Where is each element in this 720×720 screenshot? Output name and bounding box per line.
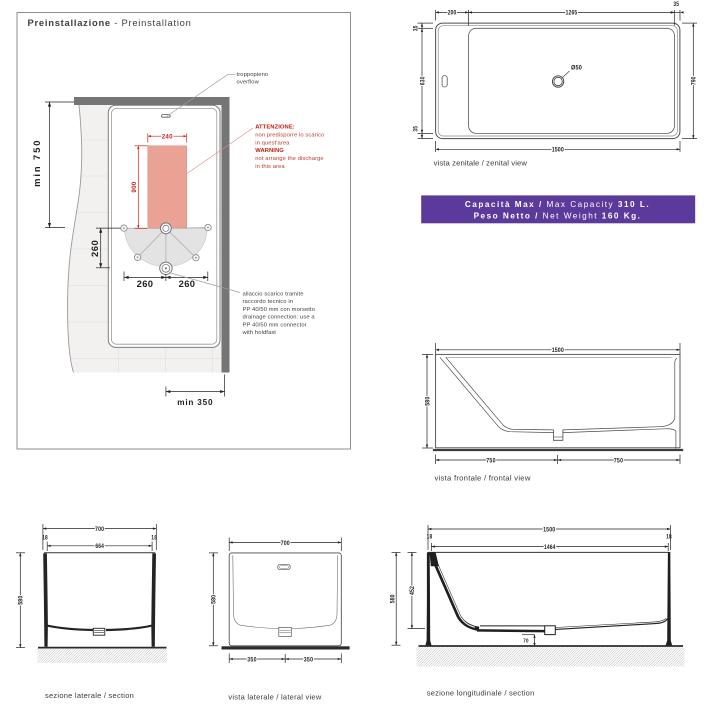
svg-text:750: 750 <box>486 458 496 465</box>
svg-text:580: 580 <box>390 594 397 603</box>
svg-text:overflow: overflow <box>237 79 260 85</box>
svg-text:580: 580 <box>425 396 432 406</box>
svg-text:min 750: min 750 <box>31 139 42 187</box>
svg-text:ATTENZIONE:: ATTENZIONE: <box>255 125 295 131</box>
svg-text:18: 18 <box>666 534 672 541</box>
svg-text:sezione laterale / section: sezione laterale / section <box>45 691 134 700</box>
svg-text:troppopieno: troppopieno <box>237 72 269 78</box>
svg-text:240: 240 <box>162 133 173 140</box>
svg-text:in this area: in this area <box>255 164 285 170</box>
svg-text:700: 700 <box>95 527 105 534</box>
svg-text:vista frontale / frontal view: vista frontale / frontal view <box>435 473 531 482</box>
svg-text:750: 750 <box>614 458 624 465</box>
svg-text:not arrange the discharge: not arrange the discharge <box>255 156 324 162</box>
svg-text:700: 700 <box>281 540 291 547</box>
svg-text:70: 70 <box>523 638 528 645</box>
svg-text:vista laterale / lateral view: vista laterale / lateral view <box>228 693 321 702</box>
svg-text:PP 40/50 mm connector: PP 40/50 mm connector <box>243 322 307 328</box>
svg-text:in quest'area: in quest'area <box>255 140 290 146</box>
svg-text:Preinstallazione - Preinstalla: Preinstallazione - Preinstallation <box>28 17 192 28</box>
svg-text:1500: 1500 <box>552 348 565 355</box>
svg-text:630: 630 <box>420 76 427 85</box>
svg-text:1500: 1500 <box>543 527 556 534</box>
svg-text:35: 35 <box>413 126 420 132</box>
svg-text:18: 18 <box>151 535 157 542</box>
svg-text:452: 452 <box>410 586 417 595</box>
svg-text:allaccio scarico tramite: allaccio scarico tramite <box>243 292 304 298</box>
svg-text:1464: 1464 <box>544 544 556 551</box>
svg-text:900: 900 <box>131 181 138 192</box>
svg-text:Ø50: Ø50 <box>571 64 582 72</box>
svg-text:790: 790 <box>691 77 698 86</box>
svg-text:raccordo tecnico in: raccordo tecnico in <box>243 299 294 305</box>
svg-text:with holdfast: with holdfast <box>242 330 277 336</box>
svg-text:350: 350 <box>247 657 257 664</box>
svg-text:18: 18 <box>427 534 433 541</box>
svg-text:1500: 1500 <box>552 147 565 154</box>
svg-text:580: 580 <box>18 595 25 605</box>
svg-text:580: 580 <box>211 594 218 604</box>
svg-text:200: 200 <box>448 10 457 17</box>
svg-text:1265: 1265 <box>566 10 578 17</box>
svg-text:664: 664 <box>95 544 104 551</box>
svg-text:vista zenitale / zenital view: vista zenitale / zenital view <box>434 159 528 168</box>
svg-text:Capacità Max / Max Capacity 31: Capacità Max / Max Capacity 310 L. <box>465 200 650 209</box>
svg-text:350: 350 <box>304 657 314 664</box>
svg-text:260: 260 <box>179 278 196 289</box>
svg-text:18: 18 <box>42 535 48 542</box>
svg-text:PP 40/50 mm con morsetto: PP 40/50 mm con morsetto <box>243 307 316 313</box>
svg-text:260: 260 <box>89 240 100 257</box>
svg-text:sezione longitudinale / sectio: sezione longitudinale / section <box>427 689 535 698</box>
svg-text:Peso Netto / Net Weight 160 Kg: Peso Netto / Net Weight 160 Kg. <box>474 212 642 221</box>
svg-text:non predisporre lo scarico: non predisporre lo scarico <box>255 132 324 138</box>
svg-text:WARNING: WARNING <box>255 148 284 154</box>
svg-text:35: 35 <box>673 2 679 9</box>
svg-text:min 350: min 350 <box>177 398 213 407</box>
svg-text:drainage connection: use a: drainage connection: use a <box>243 315 316 321</box>
svg-text:35: 35 <box>413 25 420 31</box>
svg-text:260: 260 <box>137 278 154 289</box>
